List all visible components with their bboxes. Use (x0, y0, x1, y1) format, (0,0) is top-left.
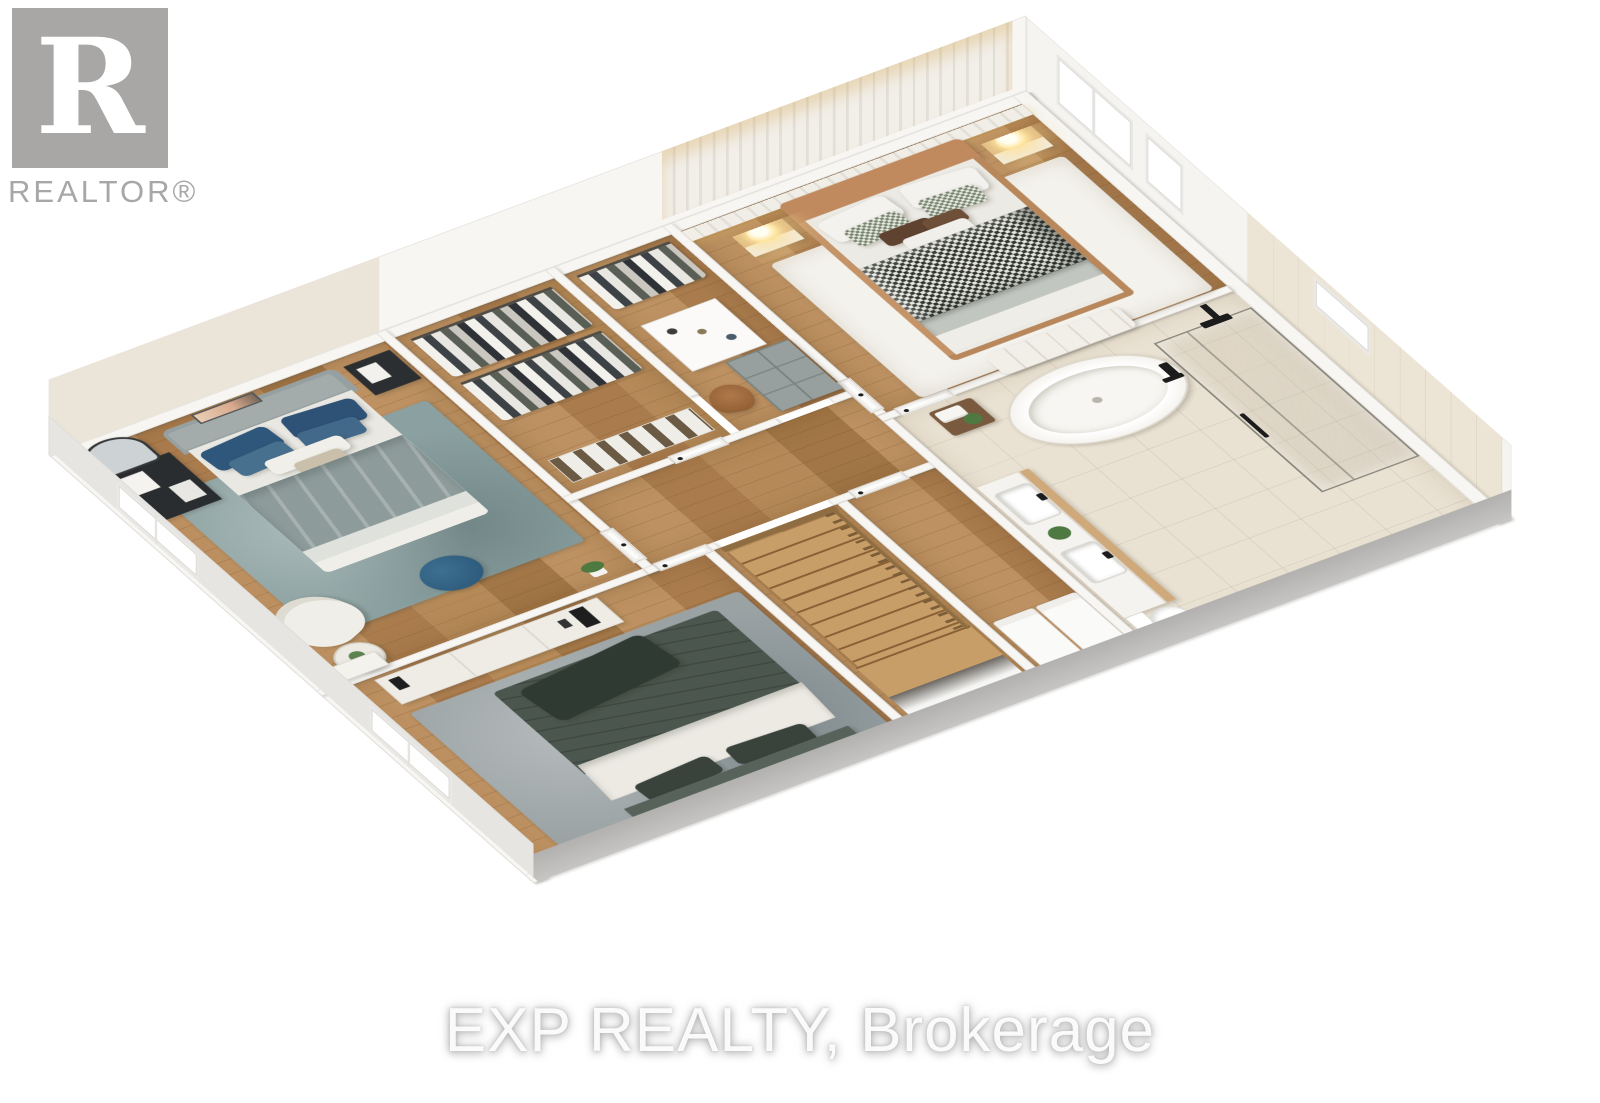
nightstand-panel (356, 362, 392, 384)
perfume-items (665, 327, 680, 335)
glowing-lamp-right (989, 127, 1033, 152)
perfume-items (695, 328, 708, 336)
floorplan (49, 91, 1512, 884)
realtor-logo-label: REALTOR® (8, 174, 228, 210)
realtor-logo-r: R (35, 13, 145, 163)
primary-window-short (1145, 132, 1183, 216)
speaker-small (388, 676, 410, 690)
console-drawer-line (522, 625, 550, 649)
speaker-small (557, 619, 573, 629)
brokerage-watermark: EXP REALTY, Brokerage (0, 995, 1600, 1066)
window-mullion (408, 738, 410, 768)
perfume-items (724, 333, 739, 341)
glowing-lamp-left (740, 220, 784, 245)
speaker-tower (568, 606, 601, 628)
window-mullion (1092, 85, 1095, 138)
window-mullion (155, 514, 157, 544)
realtor-logo: R (12, 8, 168, 168)
